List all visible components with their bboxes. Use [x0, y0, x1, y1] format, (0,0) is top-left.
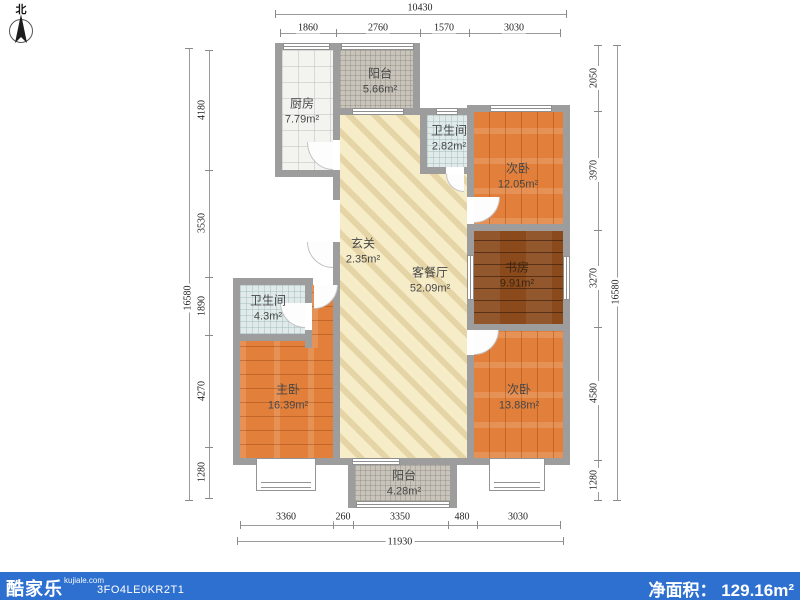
dim-bottom-seg: 3360 — [274, 512, 298, 523]
dim-tick — [280, 29, 281, 37]
dim-right-total: 16580 — [611, 278, 622, 307]
dim-line-left-segments — [209, 50, 210, 498]
dim-tick — [594, 460, 602, 461]
label-bath-left: 卫生间 4.3m² — [250, 292, 286, 325]
label-bedroom-tr: 次卧 12.05m² — [498, 160, 538, 193]
dim-left-seg: 1890 — [197, 294, 208, 318]
room-name: 客餐厅 — [410, 264, 450, 281]
window-balcony-bottom — [356, 501, 450, 508]
dim-bottom-seg: 3030 — [506, 512, 530, 523]
dim-tick — [560, 521, 561, 529]
dim-tick — [594, 45, 602, 46]
room-name: 卫生间 — [431, 122, 467, 139]
room-area: 4.3m² — [250, 310, 286, 326]
dim-line-bottom-segments — [240, 525, 560, 526]
plan-code: 3FO4LE0KR2T1 — [97, 584, 184, 596]
brand-logo: 酷家乐 — [6, 575, 63, 600]
dim-tick — [613, 500, 621, 501]
dim-tick — [237, 537, 238, 545]
dim-bottom-seg: 3350 — [388, 512, 412, 523]
window-study-left — [467, 255, 474, 300]
label-balcony-top: 阳台 5.66m² — [363, 65, 397, 98]
bay-window-bedroom-br — [489, 458, 545, 491]
room-name: 次卧 — [498, 160, 538, 177]
dim-tick — [420, 29, 421, 37]
dim-tick — [205, 335, 213, 336]
room-area: 4.28m² — [387, 485, 421, 501]
window-bath-top — [436, 108, 458, 115]
dim-tick — [275, 10, 276, 18]
dim-bottom-seg: 260 — [334, 512, 353, 523]
dim-tick — [205, 50, 213, 51]
door-arc-entrance — [307, 242, 333, 268]
dim-top-seg: 2760 — [366, 23, 390, 34]
floorplan-page: 北 厨房 7.79m² — [0, 0, 800, 600]
door-opening-bedroom-tr — [467, 197, 474, 224]
room-name: 次卧 — [499, 381, 539, 398]
room-name: 阳台 — [387, 467, 421, 484]
window-living-bottom — [352, 458, 400, 465]
footer-bar: 酷家乐 kujiale.com 3FO4LE0KR2T1 净面积： 129.16… — [0, 572, 800, 600]
net-area-value: 129.16m² — [721, 581, 794, 600]
dim-tick — [185, 500, 193, 501]
dim-left-seg: 4270 — [197, 379, 208, 403]
door-opening-master — [313, 278, 333, 285]
label-kitchen: 厨房 7.79m² — [285, 95, 319, 128]
room-name: 玄关 — [346, 235, 380, 252]
door-opening-bath-top — [446, 167, 464, 174]
dim-right-seg: 2050 — [589, 66, 600, 90]
room-name: 书房 — [500, 259, 534, 276]
dim-top-seg: 3030 — [502, 23, 526, 34]
dim-tick — [205, 447, 213, 448]
dim-tick — [594, 327, 602, 328]
net-area: 净面积： 129.16m² — [648, 576, 794, 600]
window-balcony-top — [341, 43, 414, 50]
dim-line-left-total — [189, 48, 190, 500]
dim-top-seg: 1570 — [432, 23, 456, 34]
net-area-label: 净面积： — [648, 581, 716, 600]
dim-tick — [185, 48, 193, 49]
dim-right-seg: 3270 — [589, 266, 600, 290]
room-area: 5.66m² — [363, 83, 397, 99]
bay-window-glass — [261, 482, 311, 488]
room-name: 厨房 — [285, 95, 319, 112]
room-area: 13.88m² — [499, 399, 539, 415]
dim-tick — [205, 170, 213, 171]
window-kitchen-top — [283, 43, 330, 50]
window-bedroom-tr-top — [490, 105, 552, 112]
room-area: 9.91m² — [500, 277, 534, 293]
window-balcony-living — [352, 108, 404, 115]
dim-tick — [594, 500, 602, 501]
dim-right-seg: 1280 — [589, 468, 600, 492]
dim-left-total: 16580 — [183, 284, 194, 313]
north-arrow-icon — [6, 12, 36, 50]
room-area: 2.82m² — [431, 140, 467, 156]
dim-tick — [594, 111, 602, 112]
dim-tick — [205, 277, 213, 278]
door-opening-entrance — [333, 200, 340, 242]
room-area: 52.09m² — [410, 282, 450, 298]
room-area: 12.05m² — [498, 178, 538, 194]
dim-tick — [469, 29, 470, 37]
label-bath-top: 卫生间 2.82m² — [431, 122, 467, 155]
dim-line-top-total — [275, 14, 566, 15]
room-name: 卫生间 — [250, 292, 286, 309]
dim-left-seg: 4180 — [197, 98, 208, 122]
dim-bottom-total: 11930 — [386, 537, 415, 548]
bay-window-glass — [494, 482, 540, 488]
dim-bottom-seg: 480 — [453, 512, 472, 523]
room-area: 7.79m² — [285, 113, 319, 129]
label-study: 书房 9.91m² — [500, 259, 534, 292]
label-hallway: 玄关 2.35m² — [346, 235, 380, 268]
label-balcony-bottom: 阳台 4.28m² — [387, 467, 421, 500]
window-study-right — [563, 256, 570, 300]
dim-tick — [240, 521, 241, 529]
door-opening-bath-left — [305, 303, 312, 330]
dim-line-right-total — [617, 45, 618, 500]
dim-right-seg: 4580 — [589, 381, 600, 405]
dim-left-seg: 1280 — [197, 460, 208, 484]
dim-top-total: 10430 — [406, 3, 435, 14]
room-name: 主卧 — [268, 381, 308, 398]
dim-tick — [560, 29, 561, 37]
compass-needle — [15, 14, 27, 43]
north-compass: 北 — [6, 1, 36, 51]
label-master: 主卧 16.39m² — [268, 381, 308, 414]
dim-top-seg: 1860 — [296, 23, 320, 34]
dim-tick — [594, 230, 602, 231]
dim-tick — [477, 521, 478, 529]
dim-tick — [353, 521, 354, 529]
dim-tick — [205, 498, 213, 499]
bay-window-master — [256, 458, 316, 491]
door-opening-bedroom-br — [467, 330, 474, 355]
label-bedroom-br: 次卧 13.88m² — [499, 381, 539, 414]
dim-tick — [563, 537, 564, 545]
dim-left-seg: 3530 — [197, 211, 208, 235]
dim-tick — [336, 29, 337, 37]
dim-tick — [566, 10, 567, 18]
label-living: 客餐厅 52.09m² — [410, 264, 450, 297]
room-area: 16.39m² — [268, 399, 308, 415]
door-opening-kitchen — [333, 140, 340, 170]
dim-right-seg: 3970 — [589, 158, 600, 182]
dim-tick — [613, 45, 621, 46]
room-name: 阳台 — [363, 65, 397, 82]
room-area: 2.35m² — [346, 253, 380, 269]
dim-tick — [448, 521, 449, 529]
